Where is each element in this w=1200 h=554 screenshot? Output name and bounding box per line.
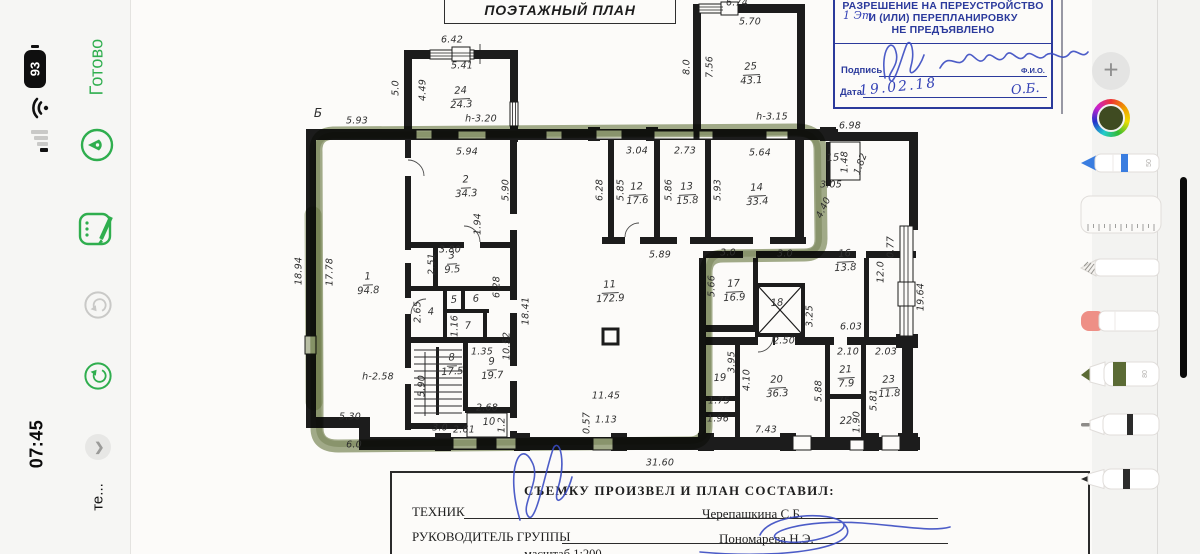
battery-percent: 93 <box>28 62 43 76</box>
battery-indicator: 93 <box>24 50 46 88</box>
ink-signatures <box>0 0 1200 554</box>
redo-button[interactable] <box>83 290 113 320</box>
tool-eraser[interactable] <box>1081 311 1159 331</box>
marker-width-label: 80 <box>1142 370 1149 378</box>
compose-markup-button[interactable] <box>74 202 120 252</box>
tool-fineliner[interactable] <box>1081 414 1159 435</box>
undo-button[interactable] <box>83 361 113 391</box>
tool-palette: 50 <box>1075 0 1170 554</box>
done-button[interactable]: Готово <box>87 39 108 96</box>
tool-pencil-blue[interactable]: 50 <box>1081 154 1159 172</box>
tool-ballpoint-pen[interactable] <box>1081 469 1159 489</box>
sidebar: 93 Готово <box>0 0 130 554</box>
battery-cap <box>31 45 39 48</box>
scrollbar[interactable] <box>1180 177 1187 378</box>
wifi-icon <box>26 95 52 121</box>
screen: 6.425.415.04.49h-3.205.936.745.708.07.56… <box>0 0 1200 554</box>
markup-pen-button[interactable] <box>79 127 115 163</box>
tool-pencil[interactable] <box>1081 259 1159 276</box>
app-label: те... <box>90 483 107 511</box>
status-time: 07:45 <box>27 420 48 469</box>
tool-ruler[interactable] <box>1081 196 1161 233</box>
collapse-chevron-button[interactable]: ❯ <box>85 434 111 460</box>
cellular-signal-icon <box>25 128 51 154</box>
tool-marker[interactable]: 80 <box>1081 362 1159 386</box>
chevron-icon: ❯ <box>94 440 104 454</box>
pen-width-label: 50 <box>1146 159 1153 167</box>
